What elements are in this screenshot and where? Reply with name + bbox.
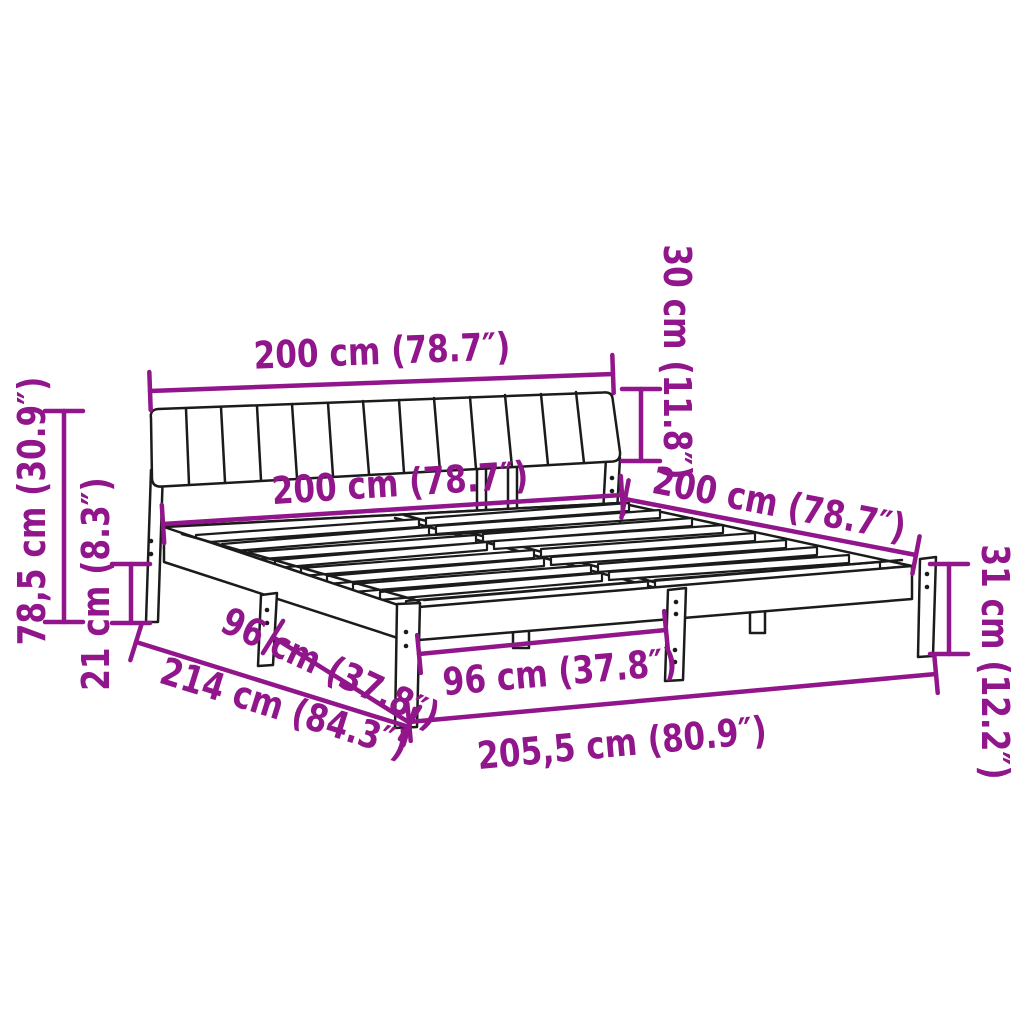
dimension-label: 200 cm (78.7″) xyxy=(253,325,511,378)
dimension-label: 31 cm (12.2″) xyxy=(972,544,1016,779)
headboard-post-left xyxy=(146,470,163,622)
screw-icon xyxy=(925,572,930,577)
screw-icon xyxy=(610,476,615,481)
dimension-label: 78,5 cm (30.9″) xyxy=(11,377,55,646)
screw-icon xyxy=(610,489,615,494)
screw-icon xyxy=(674,612,679,617)
dimension-cap xyxy=(162,505,164,543)
dim-clearance-height: 21 cm (8.3″) xyxy=(75,477,150,691)
dimension-cap xyxy=(149,372,150,410)
screw-icon xyxy=(674,600,679,605)
dim-headboard-height: 78,5 cm (30.9″) xyxy=(11,377,83,646)
screw-icon xyxy=(404,630,409,635)
screw-icon xyxy=(925,585,930,590)
dimension-cap xyxy=(934,655,937,693)
dim-cushion-height: 30 cm (11.8″) xyxy=(622,244,698,479)
bed-diagram-canvas: 200 cm (78.7″) 30 cm (11.8″) 200 cm (78.… xyxy=(0,0,1024,1024)
screw-icon xyxy=(149,539,154,544)
dimension-line xyxy=(150,374,613,391)
screw-icon xyxy=(149,552,154,557)
dimension-label: 21 cm (8.3″) xyxy=(75,477,119,691)
screw-icon xyxy=(404,644,409,649)
dimension-cap xyxy=(612,355,613,393)
dimension-diagram: 200 cm (78.7″) 30 cm (11.8″) 200 cm (78.… xyxy=(0,0,1024,1024)
dim-frame-height: 31 cm (12.2″) xyxy=(930,544,1016,779)
dimension-label: 205,5 cm (80.9″) xyxy=(475,709,768,779)
screw-icon xyxy=(265,608,270,613)
dimension-label: 30 cm (11.8″) xyxy=(654,244,698,479)
